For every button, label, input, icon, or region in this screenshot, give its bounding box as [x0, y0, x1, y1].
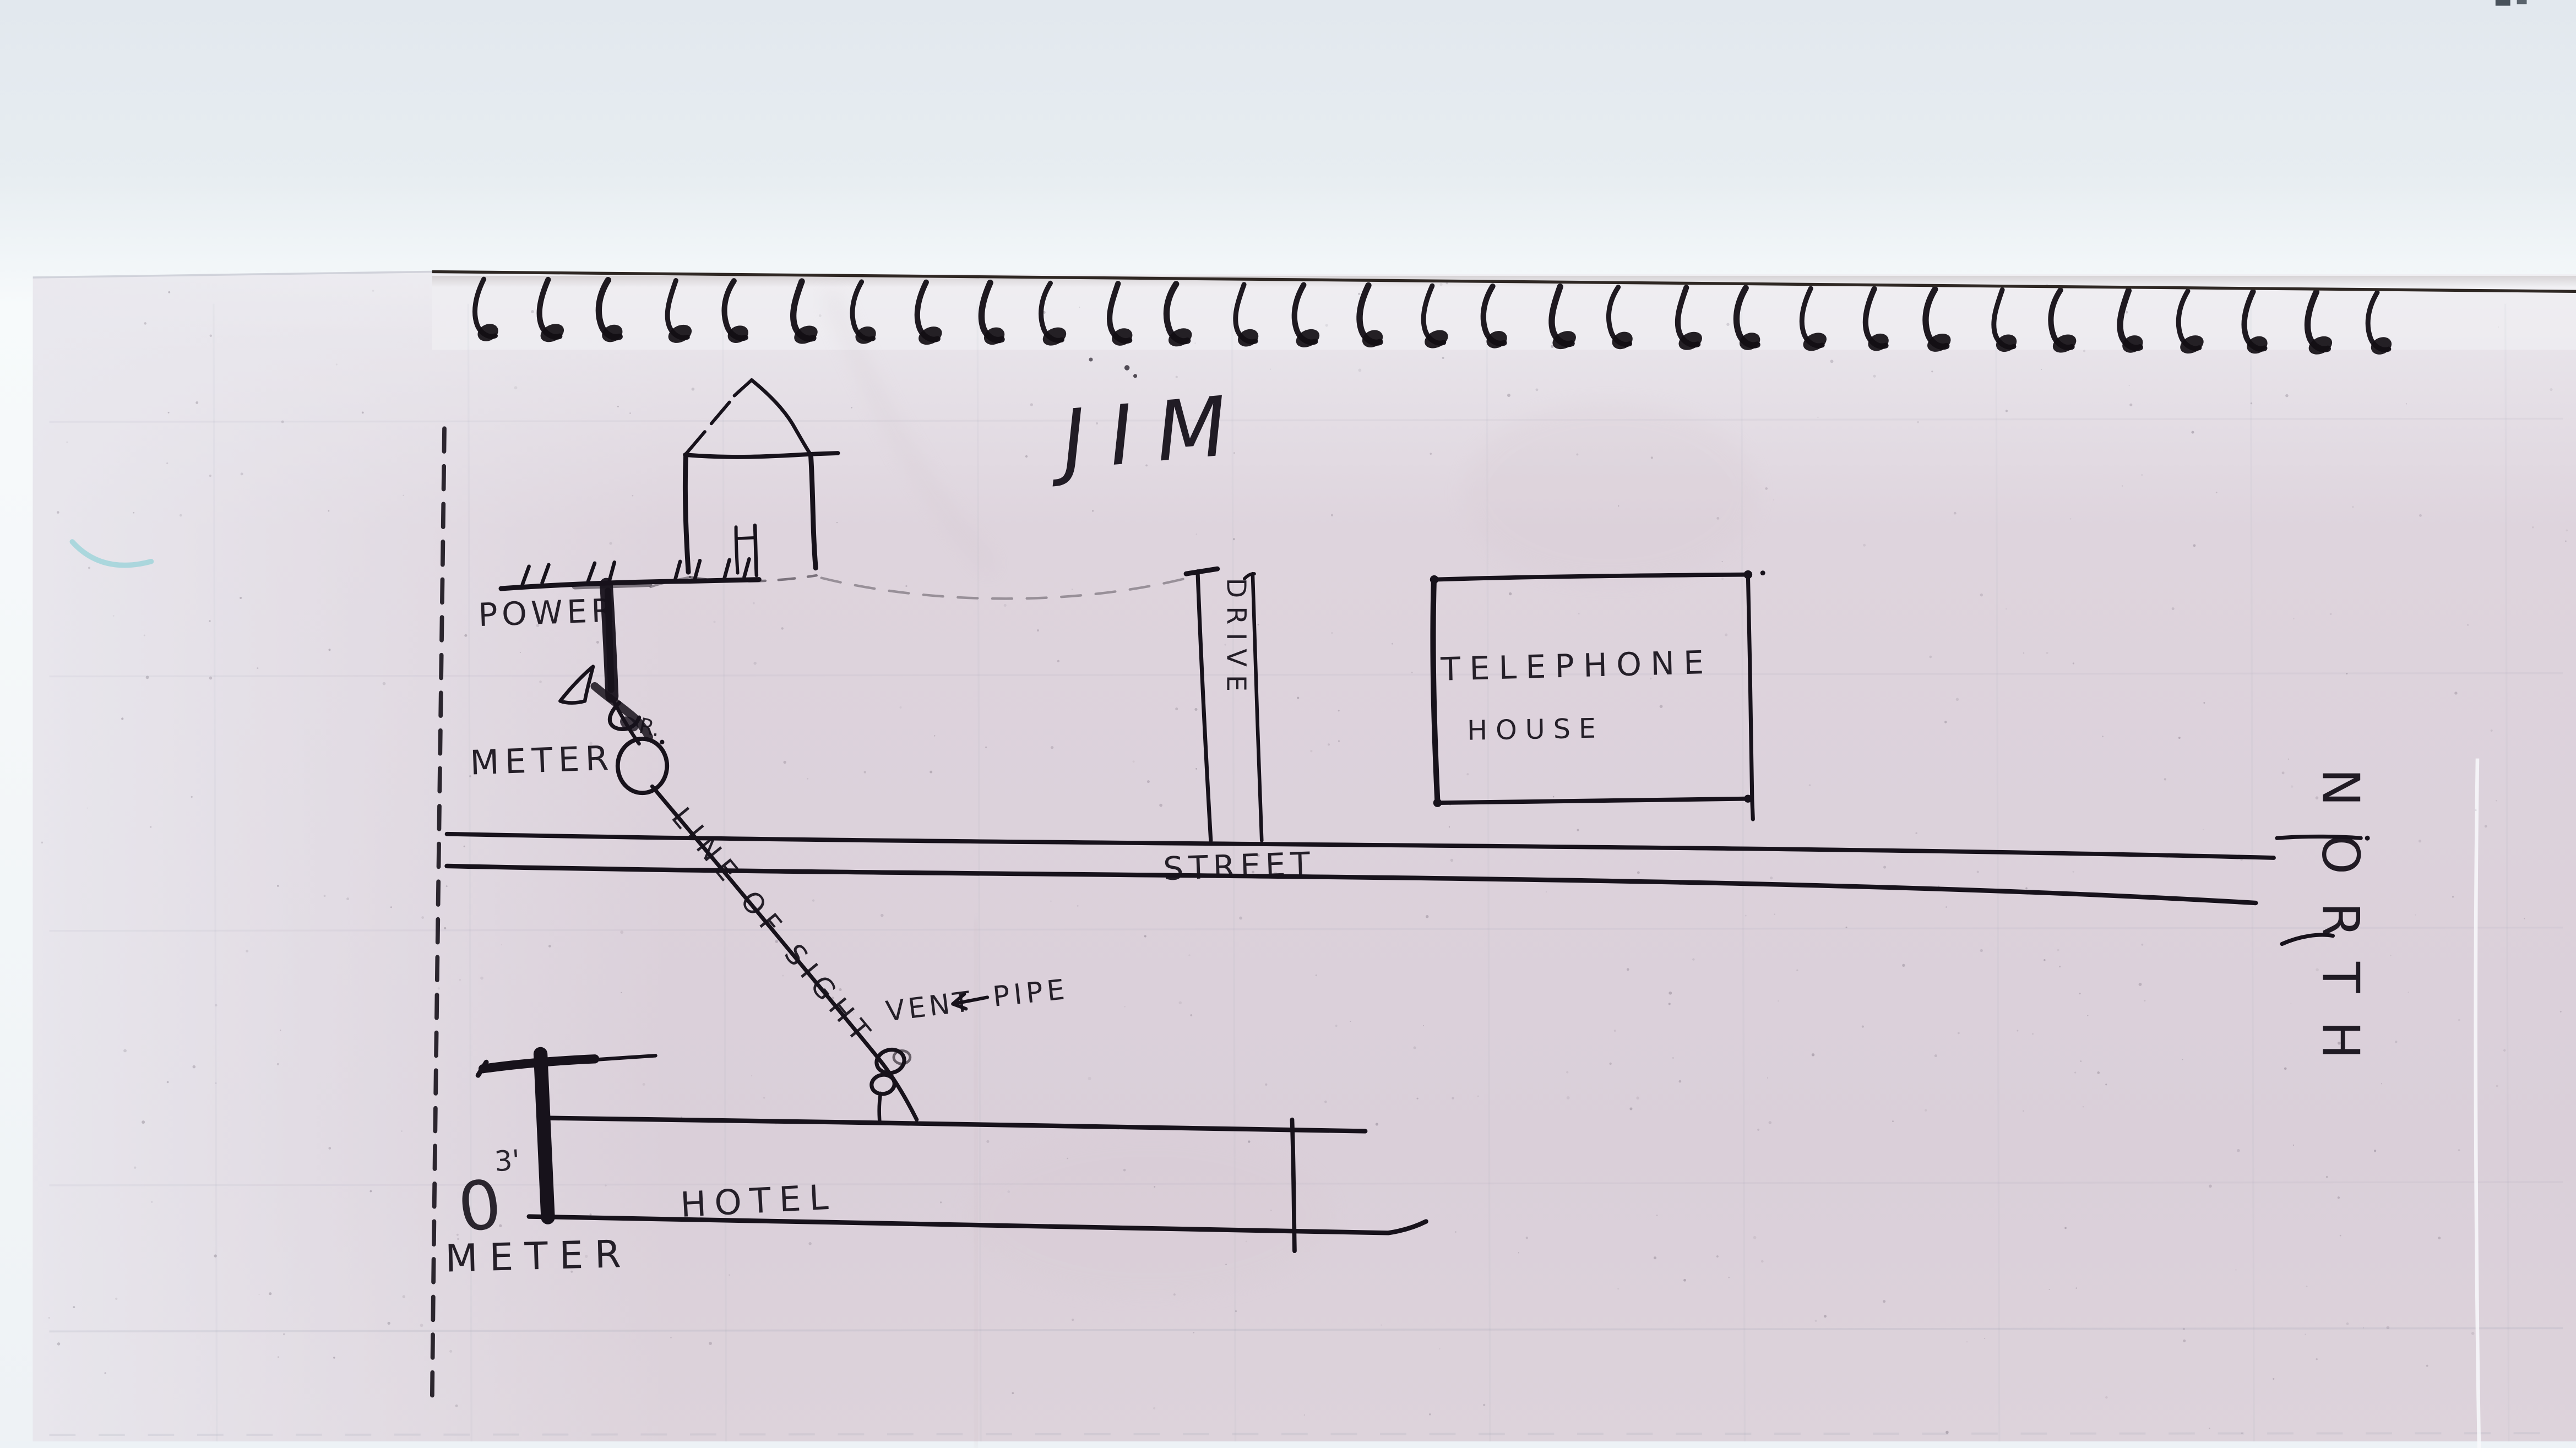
speckle	[1660, 705, 1663, 708]
speckle	[1190, 1014, 1192, 1016]
speckle	[1618, 505, 1619, 507]
speckle	[1310, 750, 1312, 752]
speckle	[277, 1063, 279, 1065]
speckle	[1761, 1260, 1764, 1263]
speckle	[2172, 607, 2175, 610]
speckle	[1553, 796, 1555, 798]
speckle	[2284, 1068, 2287, 1070]
paper-bottom-edge	[0, 1441, 2576, 1448]
speckle	[1147, 780, 1150, 783]
speckle	[2235, 1269, 2236, 1270]
speckle	[520, 652, 521, 653]
scanned-notebook-page: JIM	[0, 0, 2576, 1448]
speckle	[1509, 592, 1512, 595]
speckle	[1745, 915, 1747, 917]
speckle	[449, 1350, 452, 1353]
speckle	[1239, 917, 1242, 920]
speckle	[2293, 1145, 2294, 1146]
speckle	[123, 1049, 127, 1052]
speckle	[2057, 949, 2059, 951]
speckle	[328, 510, 330, 512]
speckle	[2415, 914, 2416, 916]
speckle	[1246, 1241, 1247, 1243]
speckle	[1683, 1279, 1686, 1282]
speckle	[1773, 499, 1774, 500]
speckle	[2203, 702, 2205, 704]
speckle	[1037, 629, 1039, 632]
speckle	[1944, 721, 1947, 723]
speckle	[763, 1097, 765, 1098]
speckle	[1133, 760, 1135, 763]
speckle	[241, 472, 243, 475]
speckle	[1193, 1332, 1194, 1333]
height-mark-label: 3'	[493, 1144, 521, 1178]
speckle	[2565, 541, 2566, 542]
speckle	[390, 906, 392, 908]
speckle	[269, 1292, 271, 1295]
speckle	[464, 634, 467, 637]
speckle	[514, 386, 518, 389]
speckle	[383, 682, 386, 685]
speckle	[2023, 1111, 2024, 1112]
speckle	[1672, 1057, 1674, 1059]
speckle	[168, 412, 170, 413]
speckle	[403, 495, 404, 496]
speckle	[1725, 634, 1727, 636]
north-label: NORTH	[2311, 769, 2371, 1087]
speckle	[753, 602, 755, 605]
speckle	[1654, 1256, 1656, 1259]
street-label: STREET	[1162, 845, 1316, 888]
speckle	[1423, 1025, 1424, 1026]
speckle	[2326, 1176, 2328, 1178]
speckle	[985, 747, 987, 748]
speckle	[692, 388, 695, 391]
speckle	[1883, 865, 1886, 868]
speckle	[709, 1342, 712, 1345]
speckle	[1088, 1077, 1091, 1080]
speckle	[1173, 1293, 1176, 1295]
speckle	[1980, 949, 1983, 952]
speckle	[1954, 512, 1957, 515]
speckle	[940, 1201, 942, 1203]
speckle	[2006, 608, 2007, 609]
speckle	[1430, 453, 1432, 455]
speckle	[464, 846, 465, 847]
speckle	[438, 987, 440, 989]
speckle	[180, 514, 182, 517]
speckle	[1765, 487, 1768, 490]
title-jim: JIM	[1045, 377, 1254, 489]
speckle	[2438, 1237, 2441, 1239]
speckle	[2046, 652, 2048, 654]
speckle	[257, 667, 258, 669]
speckle	[1902, 964, 1905, 967]
speckle	[2139, 983, 2142, 986]
speckle	[1617, 1288, 1619, 1289]
speckle	[1609, 1063, 1611, 1065]
speckle	[1536, 388, 1539, 391]
speckle	[2566, 530, 2568, 532]
speckle	[617, 406, 619, 407]
speckle	[151, 1201, 153, 1203]
drive-label: DRIVE	[1221, 578, 1251, 700]
speckle	[328, 1147, 331, 1150]
speckle	[2049, 1289, 2050, 1290]
speckle	[1007, 1190, 1010, 1193]
speckle	[1004, 604, 1007, 607]
speckle	[1124, 1006, 1126, 1007]
speckle	[1376, 1123, 1378, 1125]
speckle	[1817, 417, 1818, 418]
speckle	[2316, 1358, 2318, 1360]
speckle	[2017, 1030, 2018, 1032]
speckle	[1297, 696, 1299, 699]
speckle	[1863, 544, 1866, 547]
speckle	[387, 1322, 390, 1325]
speckle	[1154, 1186, 1155, 1188]
speckle	[1846, 927, 1847, 928]
speckle	[2346, 1322, 2349, 1325]
speckle	[1728, 1277, 1730, 1278]
wrinkle-speck	[1124, 365, 1130, 371]
speckle	[240, 597, 242, 599]
speckle	[2193, 544, 2196, 547]
speckle	[1830, 360, 1834, 363]
paper-stain	[1462, 402, 1758, 583]
speckle	[277, 885, 279, 887]
speckle	[1248, 1140, 1250, 1142]
speckle	[1194, 708, 1197, 711]
scanner-lid-mark	[2517, 0, 2527, 4]
speckle	[372, 290, 374, 292]
speckle	[2426, 1365, 2428, 1367]
speckle	[1439, 283, 1442, 286]
speckle	[1925, 1109, 1927, 1111]
speckle	[1721, 578, 1724, 580]
speckle	[455, 1405, 458, 1407]
speckle	[1883, 1300, 1885, 1303]
speckle	[1824, 1315, 1827, 1318]
speckle	[215, 1082, 216, 1084]
speckle	[1414, 1047, 1416, 1049]
speckle	[1144, 935, 1146, 937]
speckle	[643, 1083, 645, 1086]
speckle	[629, 412, 631, 414]
speckle	[113, 615, 115, 617]
speckle	[2032, 1033, 2034, 1035]
speckle	[2468, 624, 2469, 625]
speckle	[2203, 829, 2204, 830]
speckle	[1945, 1431, 1948, 1434]
speckle	[2126, 311, 2128, 314]
speckle	[501, 944, 502, 945]
speckle	[2285, 394, 2289, 398]
speckle	[1417, 1098, 1419, 1099]
speckle	[781, 627, 783, 629]
speckle	[729, 1275, 730, 1276]
speckle	[1576, 453, 1578, 455]
speckle	[2144, 1000, 2145, 1001]
speckle	[782, 975, 784, 977]
speckle	[2191, 431, 2194, 434]
speckle	[2471, 1332, 2474, 1335]
speckle	[1809, 784, 1811, 786]
speckle	[753, 662, 756, 665]
speckle	[283, 1333, 285, 1336]
speckle	[812, 899, 814, 901]
speckle	[1057, 660, 1059, 662]
speckle	[609, 542, 612, 545]
speckle	[444, 927, 446, 929]
speckle	[2346, 673, 2347, 674]
speckle	[1338, 710, 1340, 711]
speckle	[2305, 1333, 2306, 1335]
speckle	[144, 322, 146, 325]
speckle	[1265, 1084, 1267, 1086]
speckle	[2102, 736, 2104, 737]
speckle	[2408, 992, 2409, 993]
speckle	[1722, 561, 1723, 562]
speckle	[281, 421, 284, 423]
scanner-lid-mark	[2496, 0, 2510, 6]
speckle	[2079, 993, 2080, 994]
speckle	[456, 1234, 459, 1236]
speckle	[2182, 1059, 2183, 1060]
speckle	[1566, 1071, 1568, 1073]
speckle	[2006, 410, 2008, 412]
speckle	[2387, 1326, 2390, 1330]
speckle	[1196, 534, 1198, 535]
speckle	[2087, 1015, 2088, 1016]
speckle	[1769, 1121, 1771, 1124]
speckle	[2291, 785, 2293, 787]
speckle	[1753, 1236, 1757, 1239]
speckle	[1179, 1001, 1182, 1004]
speckle	[2288, 759, 2290, 760]
speckle	[2363, 1327, 2364, 1329]
speckle	[1270, 1210, 1271, 1211]
speckle	[1526, 1237, 1528, 1239]
speckle	[1233, 538, 1235, 540]
speckle	[2237, 1149, 2240, 1152]
speckle	[420, 1324, 423, 1327]
speckle	[150, 826, 151, 828]
speckle	[1716, 517, 1719, 520]
speckle	[1338, 741, 1340, 742]
speckle	[2395, 1041, 2397, 1043]
speckle	[214, 1254, 216, 1257]
speckle	[1175, 707, 1178, 710]
speckle	[905, 585, 907, 587]
speckle	[1270, 369, 1271, 370]
speckle	[133, 512, 135, 514]
speckle	[2496, 1085, 2498, 1087]
speckle	[1518, 1253, 1519, 1254]
speckle	[2183, 1328, 2185, 1330]
speckle	[66, 442, 68, 443]
speckle	[2498, 326, 2499, 328]
speckle	[605, 1185, 606, 1186]
speckle	[2550, 388, 2552, 391]
speckle	[751, 1075, 752, 1076]
speckle	[1862, 1025, 1864, 1027]
speckle	[1796, 970, 1798, 971]
speckle	[1629, 1107, 1632, 1110]
speckle	[596, 641, 599, 644]
speckle	[1767, 1077, 1768, 1079]
speckle	[2141, 474, 2143, 476]
speckle	[864, 771, 867, 774]
speckle	[2025, 888, 2028, 890]
speckle	[1627, 968, 1629, 971]
speckle	[1984, 1338, 1985, 1339]
speckle	[324, 895, 326, 897]
speckle	[1546, 891, 1547, 892]
speckle	[1316, 975, 1317, 976]
speckle	[1669, 1003, 1671, 1005]
speckle	[278, 1356, 279, 1358]
speckle	[209, 475, 211, 477]
speckle	[1679, 1080, 1682, 1083]
speckle	[808, 1242, 811, 1245]
speckle	[1350, 1021, 1351, 1022]
speckle	[1077, 905, 1079, 907]
speckle	[1381, 1325, 1382, 1326]
speckle	[1331, 514, 1333, 516]
speckle	[2129, 404, 2132, 406]
speckle	[2023, 652, 2025, 654]
speckle	[1726, 323, 1729, 325]
speckle	[539, 681, 542, 683]
speckle	[986, 1140, 989, 1143]
speckle	[1176, 376, 1178, 378]
speckle	[1915, 832, 1917, 834]
speckle	[1917, 421, 1919, 423]
ink-dot	[660, 740, 664, 744]
speckle	[1331, 632, 1333, 634]
telephone-house-label-line2: HOUSE	[1467, 712, 1605, 746]
speckle	[2178, 737, 2181, 739]
speckle	[2293, 618, 2294, 619]
speckle	[1159, 804, 1162, 807]
speckle	[121, 717, 123, 720]
speckle	[2340, 1235, 2341, 1237]
speckle	[548, 945, 551, 948]
speckle	[2491, 730, 2493, 732]
speckle	[2129, 385, 2130, 386]
speckle	[621, 992, 622, 993]
speckle	[2374, 1150, 2376, 1152]
speckle	[2041, 369, 2042, 370]
speckle	[1636, 1097, 1639, 1099]
speckle	[2083, 1106, 2084, 1107]
meter-lower-label: METER	[445, 1232, 633, 1281]
speckle	[1392, 643, 1393, 645]
speckle	[1450, 859, 1453, 862]
speckle	[1429, 1413, 1431, 1416]
speckle	[144, 635, 145, 636]
speckle	[1067, 1158, 1068, 1160]
speckle	[1637, 871, 1640, 874]
speckle	[280, 1030, 281, 1031]
speckle	[1195, 768, 1197, 770]
speckle	[1669, 992, 1672, 995]
speckle	[88, 567, 90, 569]
speckle	[2273, 1378, 2274, 1380]
speckle	[2381, 1083, 2382, 1084]
speckle	[2073, 871, 2074, 873]
speckle	[819, 314, 822, 317]
speckle	[1873, 375, 1876, 378]
speckle	[362, 411, 364, 413]
speckle	[1716, 1255, 1719, 1258]
speckle	[2390, 955, 2391, 956]
speckle	[246, 950, 248, 952]
speckle	[1153, 1407, 1155, 1409]
speckle	[836, 522, 838, 523]
speckle	[2560, 1011, 2562, 1012]
speckle	[1335, 1025, 1338, 1027]
speckle	[2141, 944, 2143, 946]
speckle	[2419, 514, 2422, 517]
speckle	[1072, 1319, 1074, 1321]
speckle	[2075, 1287, 2077, 1289]
speckle	[2059, 966, 2061, 967]
speckle	[2532, 526, 2534, 529]
speckle	[531, 310, 534, 313]
speckle	[1945, 906, 1947, 908]
speckle	[2164, 778, 2166, 780]
speckle	[899, 706, 901, 709]
speckle	[934, 735, 935, 736]
speckle	[215, 1004, 218, 1007]
speckle	[2073, 662, 2074, 664]
speckle	[1188, 954, 1190, 956]
speckle	[166, 462, 168, 464]
speckle	[1304, 1414, 1305, 1416]
speckle	[851, 407, 852, 409]
speckle	[783, 761, 786, 764]
speckle	[2452, 896, 2454, 898]
speckle	[459, 979, 461, 981]
speckle	[1025, 455, 1028, 458]
wrinkle-speck	[1133, 374, 1137, 378]
speckle	[191, 796, 193, 798]
speckle	[1079, 307, 1080, 308]
speckle	[1452, 1097, 1454, 1099]
speckle	[1235, 1310, 1237, 1312]
speckle	[146, 676, 149, 679]
speckle	[2122, 486, 2123, 487]
speckle	[713, 620, 715, 623]
speckle	[1578, 613, 1579, 614]
speckle	[807, 778, 808, 780]
speckle	[1567, 1096, 1570, 1099]
speckle	[209, 620, 210, 622]
speckle	[2306, 1286, 2308, 1287]
speckle	[134, 1167, 136, 1169]
speckle	[2290, 1003, 2291, 1004]
speckle	[195, 401, 198, 404]
speckle	[1194, 342, 1195, 344]
speckle	[2496, 800, 2497, 801]
speckle	[2475, 809, 2476, 811]
speckle	[1958, 1032, 1960, 1035]
speckle	[1757, 1129, 1759, 1131]
speckle	[2454, 692, 2457, 694]
speckle	[2074, 1071, 2076, 1073]
